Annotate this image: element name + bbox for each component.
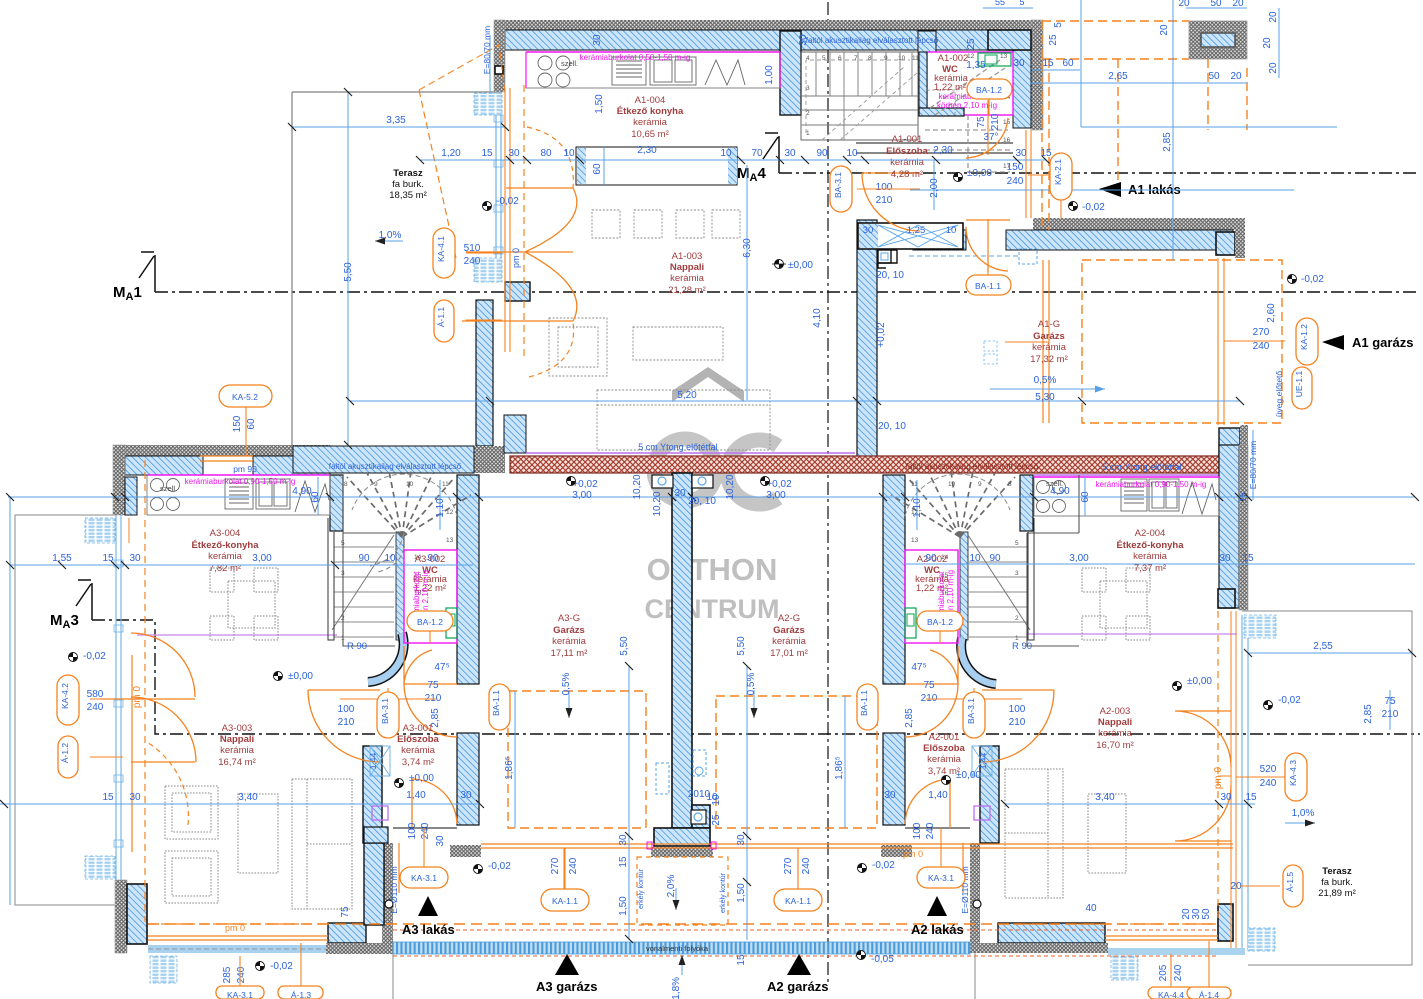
svg-text:A3 garázs: A3 garázs bbox=[536, 979, 597, 994]
svg-text:240: 240 bbox=[925, 822, 936, 839]
svg-text:3,35: 3,35 bbox=[386, 115, 406, 126]
svg-text:7,37 m²: 7,37 m² bbox=[1134, 563, 1166, 574]
svg-text:75: 75 bbox=[1384, 696, 1396, 707]
svg-text:4,10: 4,10 bbox=[812, 308, 823, 328]
svg-text:100: 100 bbox=[912, 822, 923, 839]
svg-text:25: 25 bbox=[711, 814, 722, 826]
svg-text:kerámiaburkolat 0,90-1,50 m-ig: kerámiaburkolat 0,90-1,50 m-ig bbox=[185, 477, 296, 486]
svg-text:5: 5 bbox=[341, 540, 345, 547]
svg-text:47⁵: 47⁵ bbox=[434, 662, 449, 673]
svg-text:1,50: 1,50 bbox=[594, 94, 605, 114]
svg-text:pm 0: pm 0 bbox=[511, 248, 521, 268]
svg-text:17,11 m²: 17,11 m² bbox=[551, 648, 588, 659]
svg-text:20: 20 bbox=[1232, 0, 1244, 9]
svg-text:±0,00: ±0,00 bbox=[1187, 676, 1212, 687]
svg-text:10: 10 bbox=[946, 225, 957, 236]
svg-text:210: 210 bbox=[990, 113, 1001, 130]
svg-text:+0,02: +0,02 bbox=[766, 479, 792, 490]
svg-text:1,86⁵: 1,86⁵ bbox=[834, 756, 845, 780]
svg-text:E=80/70 mm: E=80/70 mm bbox=[482, 26, 492, 74]
svg-text:A2 lakás: A2 lakás bbox=[911, 922, 964, 937]
svg-text:50: 50 bbox=[1201, 908, 1212, 920]
svg-text:5: 5 bbox=[1053, 22, 1064, 28]
svg-text:OTTHON: OTTHON bbox=[647, 552, 778, 587]
svg-text:25: 25 bbox=[966, 38, 977, 50]
svg-text:270: 270 bbox=[1253, 327, 1270, 338]
svg-text:-0,02: -0,02 bbox=[1278, 695, 1301, 706]
svg-text:2,65: 2,65 bbox=[1108, 71, 1128, 82]
svg-text:2,85: 2,85 bbox=[1162, 132, 1173, 152]
svg-text:5,50: 5,50 bbox=[619, 636, 630, 656]
svg-text:37°: 37° bbox=[983, 132, 998, 143]
svg-text:21,28 m²: 21,28 m² bbox=[668, 285, 706, 296]
svg-text:R 90: R 90 bbox=[1012, 641, 1032, 652]
svg-text:4,28 m²: 4,28 m² bbox=[891, 169, 923, 180]
svg-text:+0,02: +0,02 bbox=[572, 479, 598, 490]
svg-text:kerámia: kerámia bbox=[220, 745, 255, 756]
svg-text:BA-1.1: BA-1.1 bbox=[491, 690, 501, 716]
svg-text:2,30: 2,30 bbox=[637, 145, 657, 156]
svg-text:5: 5 bbox=[822, 55, 826, 62]
svg-text:285: 285 bbox=[222, 966, 233, 983]
svg-text:15: 15 bbox=[618, 856, 629, 868]
svg-text:+0,02: +0,02 bbox=[876, 322, 887, 348]
svg-text:1,50: 1,50 bbox=[618, 896, 629, 916]
svg-text:szell.: szell. bbox=[1046, 479, 1063, 488]
svg-text:kerámiaburkolat 0,50-1,50 m-ig: kerámiaburkolat 0,50-1,50 m-ig bbox=[580, 53, 691, 62]
svg-text:1,40: 1,40 bbox=[928, 790, 948, 801]
svg-text:5,20: 5,20 bbox=[677, 390, 697, 401]
svg-text:15: 15 bbox=[1040, 148, 1052, 159]
svg-text:5 cm Ytong előtétfal: 5 cm Ytong előtétfal bbox=[638, 442, 717, 452]
svg-text:A1 garázs: A1 garázs bbox=[1352, 335, 1413, 350]
svg-text:1,0%: 1,0% bbox=[1292, 808, 1315, 819]
svg-text:A1-G: A1-G bbox=[1038, 319, 1060, 330]
svg-text:vonalmenti folyóka: vonalmenti folyóka bbox=[646, 944, 709, 953]
svg-text:90: 90 bbox=[925, 553, 937, 564]
svg-text:30: 30 bbox=[884, 790, 896, 801]
svg-text:pm 0: pm 0 bbox=[903, 849, 923, 859]
svg-text:BA-1.2: BA-1.2 bbox=[417, 617, 443, 627]
svg-text:240: 240 bbox=[1173, 964, 1184, 981]
svg-text:4: 4 bbox=[806, 55, 810, 62]
svg-text:Nappali: Nappali bbox=[670, 262, 704, 273]
svg-text:9: 9 bbox=[374, 481, 378, 488]
svg-text:18,35 m²: 18,35 m² bbox=[389, 190, 427, 201]
svg-text:Á-1.3: Á-1.3 bbox=[291, 990, 312, 999]
svg-text:10,65 m²: 10,65 m² bbox=[631, 129, 669, 140]
svg-text:1,10: 1,10 bbox=[435, 498, 446, 518]
svg-text:2,0%: 2,0% bbox=[666, 874, 677, 897]
svg-text:30: 30 bbox=[508, 148, 520, 159]
svg-text:1,44: 1,44 bbox=[978, 752, 988, 769]
svg-text:55: 55 bbox=[995, 0, 1005, 7]
svg-text:240: 240 bbox=[1260, 778, 1277, 789]
svg-text:10: 10 bbox=[898, 55, 906, 62]
svg-text:Előszoba: Előszoba bbox=[923, 743, 965, 754]
svg-text:Á-1.5: Á-1.5 bbox=[1285, 872, 1295, 893]
svg-text:A2-003: A2-003 bbox=[1100, 706, 1131, 717]
svg-text:KA-4.4: KA-4.4 bbox=[1158, 990, 1184, 999]
svg-text:E=80/70 mm: E=80/70 mm bbox=[1248, 441, 1258, 489]
svg-text:pm 0: pm 0 bbox=[225, 923, 245, 933]
svg-text:pm 0: pm 0 bbox=[1213, 766, 1224, 789]
svg-text:±0,00: ±0,00 bbox=[288, 671, 313, 682]
svg-text:50: 50 bbox=[1208, 71, 1220, 82]
svg-text:fa burk.: fa burk. bbox=[392, 179, 424, 190]
svg-text:0,5%: 0,5% bbox=[746, 672, 757, 695]
svg-text:KA-1.1: KA-1.1 bbox=[785, 896, 811, 906]
svg-text:3: 3 bbox=[1015, 570, 1019, 577]
svg-text:±0,00: ±0,00 bbox=[409, 773, 434, 784]
svg-text:5: 5 bbox=[1019, 0, 1024, 7]
svg-text:150: 150 bbox=[1007, 162, 1024, 173]
svg-text:kerámia: kerámia bbox=[890, 157, 925, 168]
svg-text:10,20: 10,20 bbox=[652, 491, 663, 516]
svg-text:Á-1.2: Á-1.2 bbox=[60, 743, 70, 764]
svg-text:3,40: 3,40 bbox=[1095, 792, 1115, 803]
svg-text:100: 100 bbox=[876, 182, 893, 193]
svg-text:-1,8%: -1,8% bbox=[671, 977, 682, 999]
svg-text:6,30: 6,30 bbox=[742, 238, 753, 258]
svg-text:20: 20 bbox=[1230, 71, 1242, 82]
svg-text:Étkező-konyha: Étkező-konyha bbox=[1116, 540, 1184, 551]
svg-text:Étkező konyha: Étkező konyha bbox=[617, 106, 684, 117]
svg-text:13: 13 bbox=[446, 537, 454, 544]
svg-text:30: 30 bbox=[863, 225, 874, 236]
svg-text:240: 240 bbox=[801, 857, 812, 874]
svg-text:20: 20 bbox=[1262, 37, 1273, 49]
svg-text:11: 11 bbox=[442, 481, 449, 488]
svg-text:10: 10 bbox=[384, 553, 396, 564]
svg-text:1,35: 1,35 bbox=[966, 60, 986, 71]
svg-text:faltól akusztikailag elválaszt: faltól akusztikailag elválasztott lépcső bbox=[806, 36, 939, 45]
svg-text:1,86⁵: 1,86⁵ bbox=[504, 756, 515, 780]
svg-text:240: 240 bbox=[568, 857, 579, 874]
svg-text:1: 1 bbox=[806, 130, 810, 137]
svg-text:11: 11 bbox=[912, 55, 919, 62]
svg-text:75: 75 bbox=[923, 680, 935, 691]
svg-text:30: 30 bbox=[784, 148, 796, 159]
svg-text:körben 2,10 m-ig: körben 2,10 m-ig bbox=[937, 101, 997, 110]
svg-text:90: 90 bbox=[816, 148, 828, 159]
svg-text:A1-004: A1-004 bbox=[635, 95, 666, 106]
svg-text:210: 210 bbox=[876, 195, 893, 206]
svg-text:BA-1.2: BA-1.2 bbox=[976, 85, 1002, 95]
svg-text:30: 30 bbox=[129, 553, 141, 564]
svg-text:150: 150 bbox=[232, 415, 243, 432]
svg-text:kerámia: kerámia bbox=[208, 551, 243, 562]
svg-text:1,20: 1,20 bbox=[441, 148, 461, 159]
svg-text:100: 100 bbox=[1009, 704, 1026, 715]
svg-text:10: 10 bbox=[720, 148, 732, 159]
svg-text:A3-004: A3-004 bbox=[210, 528, 241, 539]
svg-text:KA-4.3: KA-4.3 bbox=[1288, 760, 1298, 786]
svg-text:12: 12 bbox=[446, 509, 454, 516]
svg-text:6: 6 bbox=[838, 55, 842, 62]
svg-text:CENTRUM: CENTRUM bbox=[645, 594, 780, 624]
svg-text:kerámia: kerámia bbox=[633, 117, 668, 128]
svg-text:0,5%: 0,5% bbox=[561, 672, 572, 695]
svg-text:20: 20 bbox=[1178, 0, 1190, 9]
svg-text:15: 15 bbox=[1238, 492, 1248, 502]
svg-text:210: 210 bbox=[1382, 709, 1399, 720]
svg-text:30: 30 bbox=[435, 835, 446, 847]
svg-text:-0,02: -0,02 bbox=[270, 961, 293, 972]
svg-text:205: 205 bbox=[1158, 964, 1169, 981]
svg-text:kerámiaburkolat 0,90-1,50 m-ig: kerámiaburkolat 0,90-1,50 m-ig bbox=[1096, 480, 1207, 489]
svg-text:BA-3.1: BA-3.1 bbox=[966, 698, 976, 724]
svg-text:7: 7 bbox=[854, 55, 858, 62]
svg-text:kerámia: kerámia bbox=[401, 745, 436, 756]
svg-text:BA-1.1: BA-1.1 bbox=[859, 690, 869, 716]
svg-text:2,85: 2,85 bbox=[430, 708, 441, 728]
svg-text:2: 2 bbox=[806, 110, 810, 117]
svg-text:üveg előtető: üveg előtető bbox=[1274, 371, 1284, 418]
svg-text:Előszoba: Előszoba bbox=[397, 734, 439, 745]
svg-text:2,30: 2,30 bbox=[933, 145, 953, 156]
svg-text:240: 240 bbox=[420, 822, 431, 839]
svg-text:kerámia: kerámia bbox=[1098, 728, 1133, 739]
svg-text:8: 8 bbox=[868, 55, 872, 62]
svg-text:10,20: 10,20 bbox=[632, 474, 643, 499]
svg-text:30: 30 bbox=[460, 790, 472, 801]
svg-text:30: 30 bbox=[674, 488, 686, 499]
svg-text:240: 240 bbox=[1253, 341, 1270, 352]
svg-text:kerámia: kerámia bbox=[927, 754, 962, 765]
svg-text:5,30: 5,30 bbox=[1035, 392, 1055, 403]
svg-text:1,55: 1,55 bbox=[52, 553, 72, 564]
svg-text:25: 25 bbox=[1048, 34, 1059, 46]
svg-text:60: 60 bbox=[310, 491, 321, 503]
svg-text:30: 30 bbox=[736, 834, 747, 846]
svg-text:-0,02: -0,02 bbox=[83, 651, 106, 662]
svg-text:2,60: 2,60 bbox=[1266, 303, 1277, 323]
svg-text:5: 5 bbox=[1015, 540, 1019, 547]
svg-text:13: 13 bbox=[911, 537, 919, 544]
svg-text:16,70 m²: 16,70 m² bbox=[1096, 740, 1134, 751]
svg-text:9: 9 bbox=[978, 481, 982, 488]
svg-text:erkély kontúr: erkély kontúr bbox=[638, 868, 645, 909]
svg-text:270: 270 bbox=[550, 857, 561, 874]
svg-text:15: 15 bbox=[102, 553, 114, 564]
svg-text:A2-004: A2-004 bbox=[1135, 528, 1166, 539]
svg-text:A3-003: A3-003 bbox=[222, 723, 253, 734]
svg-text:kerámia: kerámia bbox=[1133, 551, 1168, 562]
svg-text:A2-001: A2-001 bbox=[929, 732, 960, 743]
svg-text:A1-002: A1-002 bbox=[938, 53, 969, 64]
svg-text:R 90: R 90 bbox=[347, 641, 367, 652]
svg-text:KA-3.1: KA-3.1 bbox=[411, 873, 437, 883]
svg-text:BA-1.1: BA-1.1 bbox=[975, 281, 1001, 291]
svg-text:21,89 m²: 21,89 m² bbox=[1318, 888, 1356, 899]
svg-text:10,20: 10,20 bbox=[725, 474, 736, 499]
svg-text:10: 10 bbox=[711, 794, 722, 806]
svg-text:faltól akusztikailag elválaszt: faltól akusztikailag elválasztott lépcső bbox=[906, 462, 1039, 471]
svg-text:510: 510 bbox=[464, 243, 481, 254]
svg-text:2,85: 2,85 bbox=[1363, 704, 1374, 724]
svg-text:kerámia: kerámia bbox=[552, 636, 587, 647]
svg-text:15: 15 bbox=[481, 148, 493, 159]
svg-text:270: 270 bbox=[783, 857, 794, 874]
svg-text:A3-001: A3-001 bbox=[403, 723, 434, 734]
svg-text:KA-3.1: KA-3.1 bbox=[227, 990, 253, 999]
svg-text:20, 10: 20, 10 bbox=[876, 270, 904, 281]
svg-text:2: 2 bbox=[1015, 615, 1019, 622]
svg-text:A2 garázs: A2 garázs bbox=[767, 979, 828, 994]
svg-text:30: 30 bbox=[618, 834, 629, 846]
svg-text:20: 20 bbox=[1268, 62, 1279, 74]
svg-text:90: 90 bbox=[989, 553, 1001, 564]
svg-text:10: 10 bbox=[406, 481, 414, 488]
svg-text:-0,02: -0,02 bbox=[1301, 274, 1324, 285]
svg-text:20: 20 bbox=[1159, 24, 1170, 36]
svg-text:2: 2 bbox=[341, 615, 345, 622]
svg-text:3: 3 bbox=[806, 85, 810, 92]
svg-text:-0,02: -0,02 bbox=[872, 860, 895, 871]
svg-text:5,50: 5,50 bbox=[343, 262, 354, 282]
svg-text:±0,00: ±0,00 bbox=[956, 770, 981, 781]
svg-text:30: 30 bbox=[129, 792, 141, 803]
svg-text:210: 210 bbox=[338, 717, 355, 728]
svg-text:20, 10: 20, 10 bbox=[688, 496, 716, 507]
svg-text:UE-1.1: UE-1.1 bbox=[1294, 371, 1304, 398]
svg-text:kerámia: kerámia bbox=[670, 273, 705, 284]
svg-text:60: 60 bbox=[1080, 491, 1091, 503]
svg-text:3,40: 3,40 bbox=[238, 792, 258, 803]
svg-text:BA-3.1: BA-3.1 bbox=[380, 698, 390, 724]
svg-text:3,00: 3,00 bbox=[766, 490, 786, 501]
svg-text:210: 210 bbox=[1009, 717, 1026, 728]
svg-text:3,00: 3,00 bbox=[1069, 553, 1089, 564]
svg-text:fa burk.: fa burk. bbox=[1321, 877, 1353, 888]
svg-text:BA-3.1: BA-3.1 bbox=[833, 172, 843, 198]
svg-text:240: 240 bbox=[1007, 176, 1024, 187]
svg-text:-0,02: -0,02 bbox=[1082, 202, 1105, 213]
svg-text:1,44: 1,44 bbox=[368, 752, 378, 769]
svg-text:Előszoba: Előszoba bbox=[886, 146, 928, 157]
svg-text:pm 0: pm 0 bbox=[132, 685, 143, 708]
svg-text:10: 10 bbox=[563, 148, 575, 159]
svg-text:30: 30 bbox=[1015, 148, 1027, 159]
svg-text:KA-2.1: KA-2.1 bbox=[1053, 159, 1063, 185]
svg-text:Nappali: Nappali bbox=[1098, 717, 1132, 728]
svg-text:Étkező-konyha: Étkező-konyha bbox=[191, 540, 259, 551]
svg-text:10: 10 bbox=[846, 148, 858, 159]
svg-text:3,00: 3,00 bbox=[252, 553, 272, 564]
svg-text:A3 lakás: A3 lakás bbox=[402, 922, 455, 937]
svg-text:13: 13 bbox=[1000, 53, 1008, 60]
svg-text:faltól akusztikailag elválaszt: faltól akusztikailag elválasztott lépcső bbox=[329, 462, 462, 471]
svg-text:240: 240 bbox=[87, 702, 104, 713]
svg-text:60: 60 bbox=[1062, 58, 1074, 69]
svg-text:erkély kontúr: erkély kontúr bbox=[720, 872, 727, 913]
svg-text:A2-G: A2-G bbox=[778, 613, 800, 624]
svg-text:240: 240 bbox=[464, 256, 481, 267]
svg-text:Nappali: Nappali bbox=[220, 734, 254, 745]
svg-text:1: 1 bbox=[341, 635, 345, 642]
svg-text:2,85: 2,85 bbox=[904, 708, 915, 728]
svg-text:KA-1.2: KA-1.2 bbox=[1299, 324, 1309, 350]
svg-text:47⁵: 47⁵ bbox=[911, 662, 926, 673]
svg-text:Garázs: Garázs bbox=[553, 625, 585, 636]
svg-text:szell.: szell. bbox=[160, 484, 177, 493]
svg-text:30: 30 bbox=[592, 34, 603, 46]
svg-text:3,74 m²: 3,74 m² bbox=[402, 757, 434, 768]
svg-text:1,00: 1,00 bbox=[764, 65, 775, 85]
svg-text:3,00: 3,00 bbox=[572, 490, 592, 501]
svg-text:90: 90 bbox=[358, 553, 370, 564]
svg-text:Garázs: Garázs bbox=[1033, 331, 1065, 342]
svg-text:Terasz: Terasz bbox=[1322, 866, 1352, 877]
svg-text:E=Ø110 mm: E=Ø110 mm bbox=[389, 866, 399, 913]
svg-text:A1-003: A1-003 bbox=[672, 251, 703, 262]
svg-text:8: 8 bbox=[1008, 481, 1012, 488]
svg-text:Á-1.1: Á-1.1 bbox=[436, 307, 446, 328]
svg-text:16: 16 bbox=[1003, 137, 1011, 144]
svg-text:±0,00: ±0,00 bbox=[967, 168, 992, 179]
svg-text:KA-5.2: KA-5.2 bbox=[232, 392, 258, 402]
svg-text:1,40: 1,40 bbox=[406, 790, 426, 801]
svg-text:-0,05: -0,05 bbox=[871, 954, 894, 965]
svg-text:20: 20 bbox=[1268, 11, 1279, 23]
svg-text:20, 10: 20, 10 bbox=[878, 421, 906, 432]
svg-text:17,32 m²: 17,32 m² bbox=[1030, 354, 1068, 365]
svg-text:0,5%: 0,5% bbox=[1034, 375, 1057, 386]
svg-text:520: 520 bbox=[1260, 764, 1277, 775]
svg-text:60: 60 bbox=[246, 418, 257, 430]
svg-text:±0,00: ±0,00 bbox=[788, 260, 813, 271]
svg-text:1,25: 1,25 bbox=[907, 225, 926, 236]
svg-text:BA-1.2: BA-1.2 bbox=[927, 617, 953, 627]
svg-text:75: 75 bbox=[340, 906, 351, 918]
svg-text:kerámia: kerámia bbox=[772, 636, 807, 647]
svg-text:15: 15 bbox=[1042, 58, 1054, 69]
svg-text:A3-G: A3-G bbox=[558, 613, 580, 624]
svg-text:30: 30 bbox=[1219, 553, 1231, 564]
svg-text:KA-4.1: KA-4.1 bbox=[436, 236, 446, 262]
svg-text:100: 100 bbox=[338, 704, 355, 715]
svg-text:16,74 m²: 16,74 m² bbox=[218, 757, 256, 768]
svg-text:5,50: 5,50 bbox=[736, 636, 747, 656]
svg-text:2010: 2010 bbox=[688, 789, 711, 800]
svg-text:KA-1.1: KA-1.1 bbox=[552, 896, 578, 906]
svg-text:100: 100 bbox=[407, 822, 418, 839]
svg-text:90: 90 bbox=[427, 553, 439, 564]
svg-text:Á-1.4: Á-1.4 bbox=[1199, 990, 1220, 999]
svg-text:70: 70 bbox=[751, 148, 763, 159]
svg-text:580: 580 bbox=[87, 689, 104, 700]
svg-text:15: 15 bbox=[102, 792, 114, 803]
svg-text:15: 15 bbox=[736, 954, 747, 966]
svg-text:-0,02: -0,02 bbox=[496, 196, 519, 207]
svg-text:1,10: 1,10 bbox=[912, 498, 923, 518]
svg-text:8: 8 bbox=[344, 481, 348, 488]
svg-text:-0,02: -0,02 bbox=[488, 861, 511, 872]
svg-text:30: 30 bbox=[1013, 58, 1025, 69]
svg-text:1,50: 1,50 bbox=[736, 883, 747, 903]
svg-text:KA-4.2: KA-4.2 bbox=[60, 683, 70, 709]
svg-text:KA-3.1: KA-3.1 bbox=[928, 873, 954, 883]
svg-text:Garázs: Garázs bbox=[773, 625, 805, 636]
svg-text:5 cm Ytong előtétfal: 5 cm Ytong előtétfal bbox=[1102, 462, 1181, 472]
svg-text:pm 90: pm 90 bbox=[233, 464, 257, 474]
svg-text:75: 75 bbox=[427, 680, 439, 691]
svg-text:80: 80 bbox=[540, 148, 552, 159]
svg-text:50: 50 bbox=[1210, 0, 1222, 9]
svg-text:3: 3 bbox=[341, 570, 345, 577]
svg-text:kerámia: kerámia bbox=[1032, 342, 1067, 353]
